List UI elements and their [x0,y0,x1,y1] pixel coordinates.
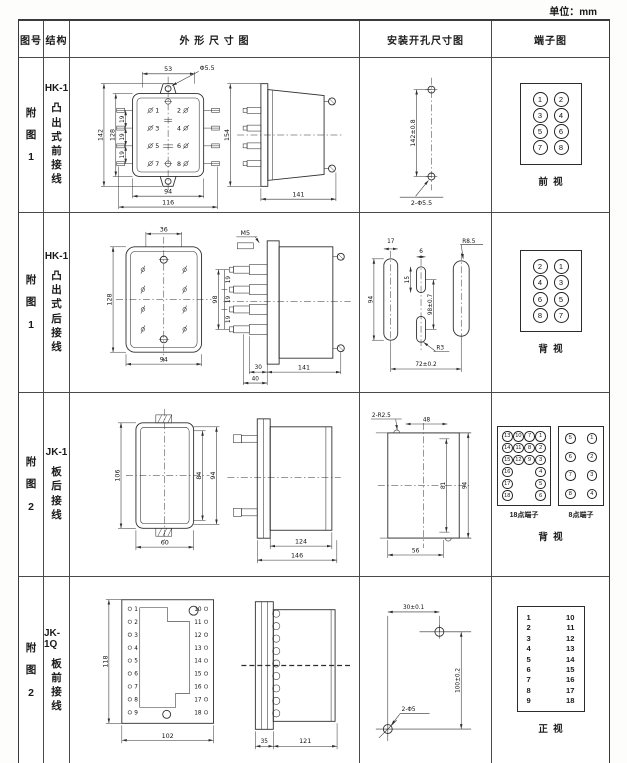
hk1-rear-outline-svg: 36 128 94 M5 [70,213,359,392]
terminal-box-8pt: 5 1 6 2 7 3 8 4 [558,426,604,506]
terminal-circle: 8 [524,443,535,454]
terminal-box-rear-view: 2 1 4 3 6 5 8 7 [520,250,582,332]
structure-cell: JK-1Q 板 前 接 线 [44,577,70,763]
dim-label: R8.5 [462,239,475,245]
page: 单位：mm 图号 结构 外 形 尺 寸 图 安装开孔尺寸图 端子图 附 图 1 … [0,0,627,763]
hk1-rear-install-svg: 17 94 6 15 98±0.7 R3 R8.5 [360,213,491,392]
terminal-box-label: 8点端子 [558,510,604,520]
dim-label: 128 [107,293,114,305]
terminal-circle: 6 [554,124,569,139]
terminal-circle: 6 [535,490,546,501]
terminal-right-column: 10 11 12 13 14 15 16 17 18 [566,613,574,705]
terminal-number: 2 [134,620,138,626]
terminal-number: 10 [194,607,202,613]
terminal-number: 3 [134,633,138,639]
dim-label: 94 [160,357,168,364]
terminal-number: 8 [527,686,531,695]
terminal-number: 9 [134,711,138,717]
terminal-number: 3 [155,125,159,132]
outline-drawing-jk1q: 1 2 3 4 5 6 7 8 9 10 11 12 13 14 15 16 1… [70,577,360,763]
dim-label: 106 [115,469,122,481]
install-drawing-jk1q: 30±0.1 100±0.2 2-Φ5 [360,577,492,763]
terminal-circle: 5 [535,479,546,490]
fig-number: 附 图 1 [19,213,44,393]
dim-label: 2-Φ5 [402,707,416,713]
dim-label: 19 [226,315,232,323]
terminal-circle: 1 [533,92,548,107]
hk1-front-install-svg: 142±0.8 2-Φ5.5 [360,58,491,212]
terminal-number: 3 [527,634,531,643]
dim-label: 94 [463,481,469,489]
terminal-number: 8 [177,161,181,168]
dim-label: 141 [292,192,304,199]
dim-label: 6 [419,249,423,255]
terminal-boxes: 13 10 7 1 14 11 8 2 15 [497,426,604,520]
terminal-circle: 5 [533,124,548,139]
dim-label: 100±0.2 [456,668,462,693]
jk1q-install-svg: 30±0.1 100±0.2 2-Φ5 [360,577,491,763]
terminal-circle: 5 [565,433,576,444]
model-label: JK-1Q [44,628,69,650]
terminal-circle: 4 [554,108,569,123]
view-label: 背 视 [538,529,562,543]
dim-label: 19 [120,133,126,141]
outline-drawing-jk1: 106 84 94 60 124 [70,393,360,577]
structure-label: 凸 出 式 后 接 线 [51,269,62,354]
terminal-number: 18 [566,696,574,705]
col-header-outline: 外 形 尺 寸 图 [70,21,360,58]
terminal-box-18pt-list: 1 2 3 4 5 6 7 8 9 10 11 12 13 14 15 [517,606,585,712]
terminal-circle: 3 [533,108,548,123]
dim-label: R3 [436,346,444,352]
dim-label: 2-Φ5.5 [411,200,432,207]
dim-label: 98 [212,295,219,303]
dim-label: 98±0.7 [428,294,434,316]
terminal-circle: 16 [502,467,513,478]
terminal-number: 6 [134,672,138,678]
terminal-circle: 6 [533,292,548,307]
dim-label: 141 [298,365,310,372]
terminal-number: 13 [194,646,202,652]
terminal-number: 5 [155,143,159,150]
terminal-number: 15 [566,665,574,674]
dim-label: 84 [196,472,203,480]
dim-label: 142±0.8 [410,119,417,146]
terminal-circle: 8 [554,140,569,155]
terminal-number: 11 [194,620,202,626]
dim-label: 17 [387,239,395,245]
terminal-diagram-cell: 2 1 4 3 6 5 8 7 背 视 [492,213,609,393]
dim-label: 40 [252,377,260,383]
terminal-number: 11 [566,623,574,632]
terminal-number: 5 [527,655,531,664]
unit-note: 单位：mm [549,3,597,18]
terminal-number: 7 [527,675,531,684]
dim-label: 19 [120,151,126,159]
terminal-number: 7 [134,685,138,691]
outline-drawing-hk1-front: 1 2 3 4 5 6 7 8 53 Φ5.5 142 128 [70,58,360,213]
dim-label: 30 [255,365,263,371]
dim-label: 15 [405,276,411,284]
terminal-number: 13 [566,644,574,653]
fig-number: 附 图 1 [19,58,44,213]
dim-label: 124 [295,539,307,546]
jk1q-outline-svg: 1 2 3 4 5 6 7 8 9 10 11 12 13 14 15 16 1… [70,577,359,763]
structure-cell: JK-1 板 后 接 线 [44,393,70,577]
terminal-diagram-cell: 1 2 3 4 5 6 7 8 前 视 [492,58,609,213]
terminal-circle: 1 [554,259,569,274]
spec-table: 图号 结构 外 形 尺 寸 图 安装开孔尺寸图 端子图 附 图 1 HK-1 凸… [18,19,610,763]
dim-label: M5 [241,230,251,237]
terminal-spacer [513,479,524,490]
terminal-number: 1 [527,613,531,622]
terminal-circle: 2 [535,443,546,454]
terminal-number: 10 [566,613,574,622]
dim-label: 121 [299,737,311,745]
structure-label: 板 后 接 线 [51,465,62,522]
fig-number: 附 图 2 [19,393,44,577]
terminal-spacer [524,490,535,501]
terminal-number: 18 [194,711,202,717]
terminal-circle: 4 [535,467,546,478]
terminal-number: 7 [155,161,159,168]
structure-cell: HK-1 凸 出 式 后 接 线 [44,213,70,393]
hk1-front-outline-svg: 1 2 3 4 5 6 7 8 53 Φ5.5 142 128 [70,58,359,212]
fig-number: 附 图 2 [19,577,44,763]
dim-label: 53 [164,66,172,73]
dim-label: 48 [423,417,431,423]
jk1-outline-svg: 106 84 94 60 124 [70,393,359,576]
install-drawing-hk1-rear: 17 94 6 15 98±0.7 R3 R8.5 [360,213,492,393]
structure-label: 板 前 接 线 [51,657,62,714]
view-label: 正 视 [538,721,562,735]
dim-label: 154 [224,129,231,141]
terminal-number: 8 [134,698,138,704]
terminal-number: 16 [194,685,202,691]
dim-label: 116 [162,200,174,207]
terminal-circle: 2 [554,92,569,107]
model-label: HK-1 [45,83,68,94]
terminal-circle: 17 [502,479,513,490]
terminal-circle: 11 [513,443,524,454]
dim-label: 102 [162,732,174,740]
view-label: 背 视 [538,341,562,355]
dim-label: 60 [161,540,169,547]
dim-label: 94 [164,189,172,196]
dim-label: 72±0.2 [415,362,437,368]
terminal-circle: 1 [535,431,546,442]
terminal-circle: 18 [502,490,513,501]
terminal-diagram-cell: 1 2 3 4 5 6 7 8 9 10 11 12 13 14 15 [492,577,609,763]
dim-label: 56 [412,548,420,554]
terminal-circle: 8 [533,308,548,323]
dim-label: 94 [210,472,217,480]
terminal-box-label: 18点端子 [497,510,551,520]
terminal-number: 17 [194,698,202,704]
terminal-diagram-cell: 13 10 7 1 14 11 8 2 15 [492,393,609,577]
terminal-circle: 15 [502,455,513,466]
terminal-number: 12 [194,633,202,639]
terminal-number: 2 [527,623,531,632]
terminal-number: 14 [194,659,202,665]
terminal-circle: 3 [535,455,546,466]
dim-label: 19 [226,296,232,304]
dim-label: 19 [226,276,232,284]
terminal-circle: 8 [565,489,576,500]
dim-label: 35 [261,739,269,745]
terminal-circle: 7 [524,431,535,442]
terminal-number: 1 [134,607,138,613]
terminal-circle: 4 [587,489,598,500]
terminal-spacer [524,479,535,490]
terminal-number: 5 [134,659,138,665]
terminal-circle: 2 [587,452,598,463]
install-drawing-hk1-front: 142±0.8 2-Φ5.5 [360,58,492,213]
terminal-circle: 9 [524,455,535,466]
terminal-number: 14 [566,655,574,664]
col-header-fig: 图号 [19,21,44,58]
terminal-circle: 10 [513,431,524,442]
terminal-circle: 1 [587,433,598,444]
terminal-number: 15 [194,672,202,678]
terminal-number: 4 [134,646,138,652]
terminal-circle: 3 [554,275,569,290]
terminal-number: 1 [155,108,159,115]
terminal-number: 4 [527,644,531,653]
model-label: HK-1 [45,251,68,262]
terminal-number: 12 [566,634,574,643]
terminal-circle: 5 [554,292,569,307]
terminal-number: 6 [527,665,531,674]
terminal-spacer [513,490,524,501]
terminal-circle: 4 [533,275,548,290]
install-drawing-jk1: 2-R2.5 48 81 94 56 [360,393,492,577]
terminal-box-front-view: 1 2 3 4 5 6 7 8 [520,83,582,165]
terminal-circle: 14 [502,443,513,454]
dim-label: 19 [120,115,126,123]
terminal-circle: 6 [565,452,576,463]
terminal-circle: 7 [554,308,569,323]
dim-label: 2-R2.5 [372,413,391,419]
dim-label: 36 [160,226,168,233]
terminal-spacer [513,467,524,478]
outline-drawing-hk1-rear: 36 128 94 M5 [70,213,360,393]
terminal-circle: 3 [587,470,598,481]
terminal-circle: 13 [502,431,513,442]
terminal-left-column: 1 2 3 4 5 6 7 8 9 [527,613,531,705]
col-header-terminal: 端子图 [492,21,609,58]
dim-label: 30±0.1 [403,605,425,611]
terminal-circle: 12 [513,455,524,466]
col-header-structure: 结构 [44,21,70,58]
terminal-number: 9 [527,696,531,705]
terminal-number: 16 [566,675,574,684]
dim-label: 118 [101,655,109,667]
dim-label: 94 [368,296,374,304]
jk1-install-svg: 2-R2.5 48 81 94 56 [360,393,491,576]
view-label: 前 视 [538,174,562,188]
terminal-circle: 7 [565,470,576,481]
terminal-circle: 2 [533,259,548,274]
dim-label: 81 [441,481,447,489]
dim-label: 146 [291,553,303,560]
structure-cell: HK-1 凸 出 式 前 接 线 [44,58,70,213]
dim-label: 142 [97,129,104,141]
col-header-install: 安装开孔尺寸图 [360,21,492,58]
terminal-number: 17 [566,686,574,695]
terminal-circle: 7 [533,140,548,155]
structure-label: 凸 出 式 前 接 线 [51,101,62,186]
terminal-number: 2 [177,108,181,115]
terminal-spacer [524,467,535,478]
terminal-number: 4 [177,125,181,132]
model-label: JK-1 [46,447,68,458]
dim-label: 128 [109,129,116,141]
dim-label: Φ5.5 [200,65,215,72]
terminal-number: 6 [177,143,181,150]
terminal-box-18pt: 13 10 7 1 14 11 8 2 15 [497,426,551,506]
